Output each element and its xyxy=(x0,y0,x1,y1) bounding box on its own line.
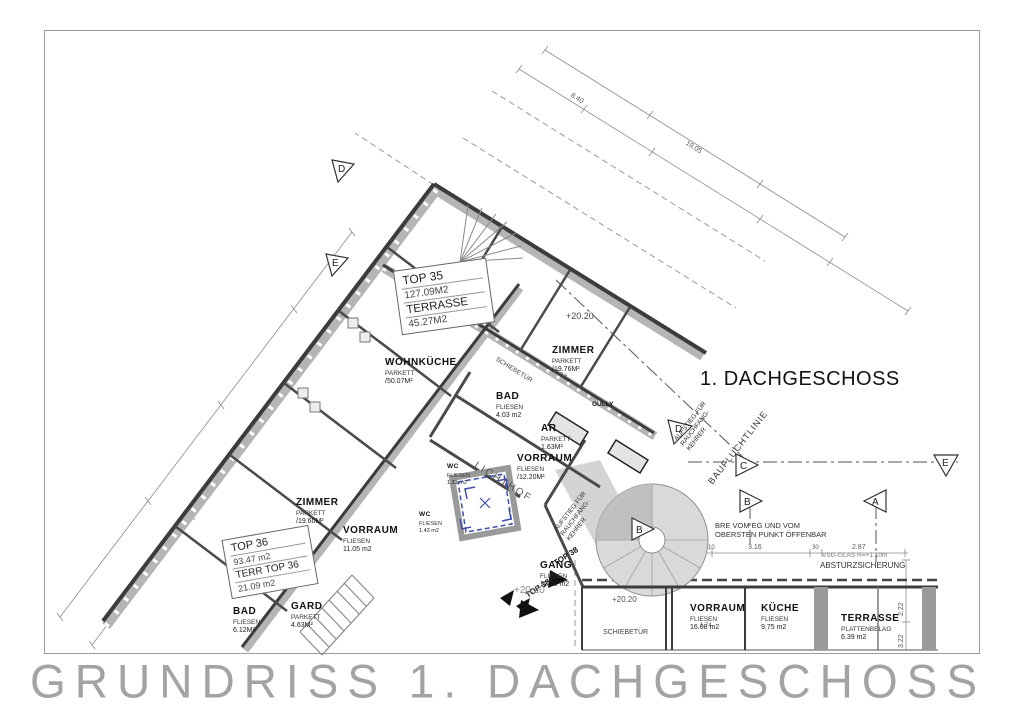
room-area: 6.12M² xyxy=(233,627,260,635)
room-finish: PARKETT xyxy=(291,614,322,621)
gully-label: GULLY xyxy=(592,401,613,408)
room-label-wohnkueche: WOHNKÜCHE PARKETT /50.07M² xyxy=(385,352,457,386)
dim-text: 3.16 xyxy=(748,544,762,551)
room-finish: FLIESEN xyxy=(761,616,799,623)
marker-letter: B xyxy=(636,525,643,536)
floor-label: 1. DACHGESCHOSS xyxy=(700,368,900,391)
level-mark: +20.20 xyxy=(514,585,545,597)
brh-note: BRE VOM EG UND VOM OBERSTEN PUNKT ÖFFENB… xyxy=(715,521,827,540)
room-name: VORRAUM xyxy=(517,453,572,464)
room-name: VORRAUM xyxy=(690,603,745,614)
section-marker-letters: D E D C B B A E xyxy=(332,164,949,536)
room-name: BAD xyxy=(233,606,256,617)
marker-letter: D xyxy=(338,164,345,175)
room-label-bad-left: BAD FLIESEN 6.12M² xyxy=(233,601,260,635)
room-finish: PARKETT xyxy=(541,436,571,443)
room-label-ar: AR PARKETT 1.63M² xyxy=(541,418,571,452)
dim-text: 30 xyxy=(812,545,819,551)
marker-letter: E xyxy=(942,458,949,469)
room-name: BAD xyxy=(496,391,519,402)
room-label-vorraum-mid: VORRAUM FLIESEN /12.20M² xyxy=(517,448,572,482)
room-label-wc-left: WC FLIESEN 1.43 m2 xyxy=(419,503,442,534)
room-name: AR xyxy=(541,423,556,434)
note-line: BRE VOM EG UND VOM xyxy=(715,521,827,530)
room-finish: PARKETT xyxy=(552,358,594,365)
room-area: 6.39 m2 xyxy=(841,634,899,642)
room-label-kueche: KÜCHE FLIESEN 9.75 m2 xyxy=(761,598,799,632)
room-name: ZIMMER xyxy=(296,497,338,508)
room-finish: FLIESEN xyxy=(690,616,745,623)
room-finish: FLIESEN xyxy=(447,473,470,479)
room-finish: PARKETT xyxy=(296,510,338,517)
room-area: 4.03 m2 xyxy=(496,412,523,420)
marker-letter: B xyxy=(744,497,751,508)
dim-text: 2.22 xyxy=(898,602,905,616)
dim-text: 2.87 xyxy=(852,544,866,551)
level-mark: +20.20 xyxy=(612,595,637,604)
dim-text: 3.22 xyxy=(898,634,905,648)
room-finish: FLIESEN xyxy=(233,619,260,626)
schiebetuer-label-2: SCHIEBETÜR xyxy=(603,629,648,637)
apartment-box-top35: TOP 35 127.09M2 TERRASSE 45.27M2 xyxy=(393,258,495,335)
room-name: WC xyxy=(447,463,459,470)
room-label-zimmer-left: ZIMMER PARKETT /19.60M² xyxy=(296,492,338,526)
dim-text: 10 xyxy=(708,545,715,551)
room-name: WOHNKÜCHE xyxy=(385,357,457,368)
room-area: /50.07M² xyxy=(385,378,457,386)
vsg-note: VSG-GLAS H=+1.10m xyxy=(822,552,887,560)
room-finish: FLIESEN xyxy=(496,404,523,411)
marker-letter: A xyxy=(872,497,879,508)
absturz-note: ABSTURZSICHERUNG xyxy=(820,561,905,571)
dim-text: 1.74 xyxy=(700,623,712,629)
sheet-title: GRUNDRISS 1. DACHGESCHOSS xyxy=(30,653,986,709)
marker-letter: E xyxy=(332,258,339,269)
room-area: 4.63M² xyxy=(291,622,322,630)
room-label-vorraum-br: VORRAUM FLIESEN 16.08 m2 xyxy=(690,598,745,632)
room-area: 1.43 m2 xyxy=(419,528,442,534)
dimension-chains xyxy=(57,46,911,650)
room-finish: FLIESEN xyxy=(343,538,398,545)
room-area: 16.08 m2 xyxy=(690,624,745,632)
room-label-wc-small: WC FLIESEN 1.31 m2 xyxy=(447,455,470,486)
room-finish: PARKETT xyxy=(385,370,457,377)
room-finish: PLATTENBELAG xyxy=(841,626,899,633)
room-name: TERRASSE xyxy=(841,613,899,624)
room-name: GARD xyxy=(291,601,322,612)
room-label-terrasse-br: TERRASSE PLATTENBELAG 6.39 m2 xyxy=(841,608,899,642)
room-area: 11.05 m2 xyxy=(343,546,398,554)
level-mark: +20.20 xyxy=(566,311,594,321)
floorplan-sheet: D E D C B B A E TOP 35 127.09M2 TERRASSE… xyxy=(0,0,1024,721)
room-area: 9.75 m2 xyxy=(761,624,799,632)
room-label-vorraum-left: VORRAUM FLIESEN 11.05 m2 xyxy=(343,520,398,554)
note-line: OBERSTEN PUNKT ÖFFENBAR xyxy=(715,530,827,539)
room-name: KÜCHE xyxy=(761,603,799,614)
room-label-gard: GARD PARKETT 4.63M² xyxy=(291,596,322,630)
room-finish: FLIESEN xyxy=(419,521,442,527)
room-area: 1.31 m2 xyxy=(447,480,470,486)
room-label-bad-top: BAD FLIESEN 4.03 m2 xyxy=(496,386,523,420)
room-name: ZIMMER xyxy=(552,345,594,356)
room-area: /12.20M² xyxy=(517,474,572,482)
room-name: WC xyxy=(419,511,431,518)
room-finish: FLIESEN xyxy=(517,466,572,473)
marker-letter: C xyxy=(740,461,747,472)
room-name: VORRAUM xyxy=(343,525,398,536)
